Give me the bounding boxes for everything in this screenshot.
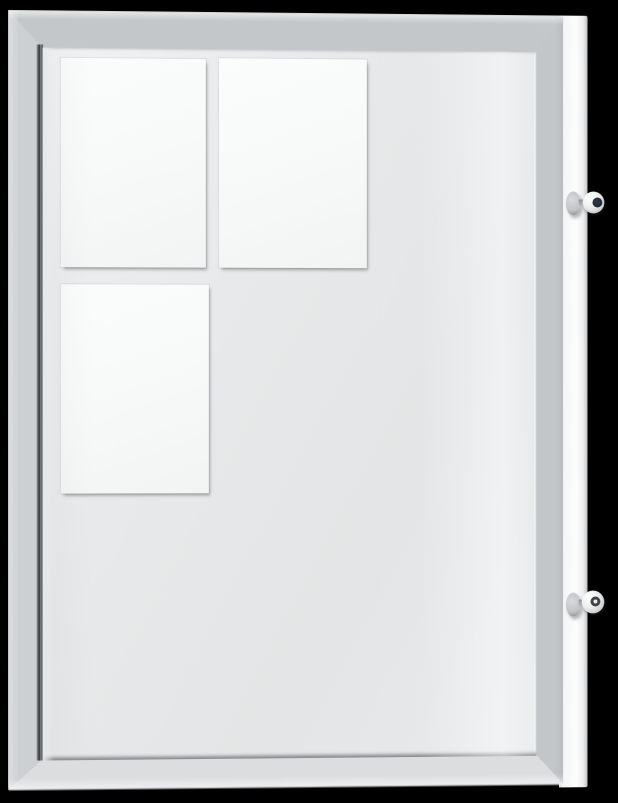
interior-backing-board — [43, 48, 537, 761]
bottom-cam-lock — [564, 589, 609, 617]
blank-paper-sheet-top-left — [61, 58, 206, 268]
top-key-head — [583, 192, 605, 214]
blank-paper-sheet-top-middle — [219, 58, 367, 268]
case-side-panel — [559, 16, 588, 788]
blank-paper-sheet-middle-left — [61, 284, 209, 493]
bottom-key-head — [582, 591, 605, 614]
display-case — [0, 0, 615, 803]
top-cam-lock — [564, 189, 609, 217]
product-photo-canvas — [0, 0, 618, 800]
